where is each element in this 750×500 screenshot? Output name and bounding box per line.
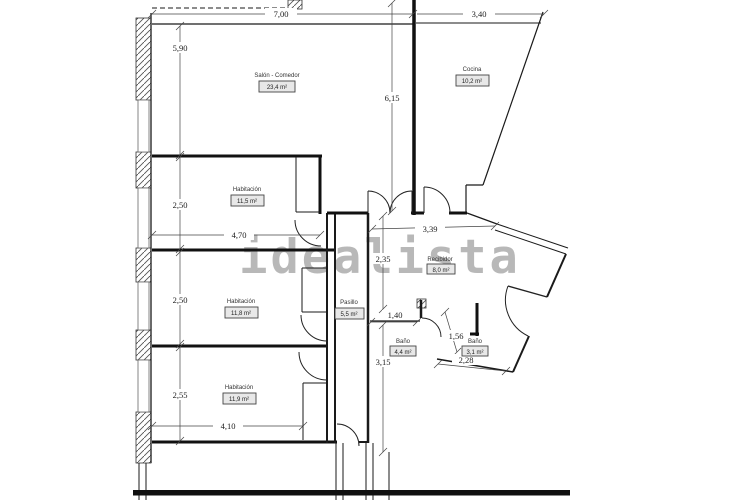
window	[138, 282, 149, 330]
svg-text:11,5 m²: 11,5 m²	[237, 199, 257, 205]
svg-text:11,8 m²: 11,8 m²	[231, 311, 251, 317]
svg-text:2,35: 2,35	[376, 254, 391, 264]
window	[138, 100, 149, 152]
svg-text:Baño: Baño	[468, 339, 483, 345]
svg-text:8,0 m²: 8,0 m²	[432, 268, 449, 274]
svg-text:Habitación: Habitación	[225, 385, 253, 391]
svg-text:Salón - Comedor: Salón - Comedor	[254, 73, 299, 79]
svg-text:1,40: 1,40	[388, 310, 403, 320]
svg-text:Recibidor: Recibidor	[427, 257, 452, 263]
svg-text:4,4 m²: 4,4 m²	[394, 350, 411, 356]
floor-plan-page: idealista	[0, 0, 750, 500]
svg-text:5,5 m²: 5,5 m²	[340, 312, 357, 318]
svg-text:2,28: 2,28	[459, 355, 474, 365]
svg-text:Baño: Baño	[396, 339, 411, 345]
wall-block	[288, 0, 302, 9]
room-label-habitacion3: Habitación 11,9 m²	[223, 385, 256, 404]
room-label-salon: Salón - Comedor 23,4 m²	[254, 73, 299, 92]
svg-text:2,55: 2,55	[173, 390, 188, 400]
window	[138, 188, 149, 248]
left-exterior-wall	[136, 18, 151, 500]
svg-text:4,70: 4,70	[232, 230, 247, 240]
svg-text:6,15: 6,15	[385, 93, 400, 103]
floor-plan: idealista	[0, 0, 750, 500]
svg-text:Pasillo: Pasillo	[340, 300, 358, 306]
svg-text:4,10: 4,10	[221, 421, 236, 431]
svg-text:Habitación: Habitación	[227, 299, 255, 305]
svg-text:5,90: 5,90	[173, 43, 188, 53]
room-label-habitacion2: Habitación 11,8 m²	[225, 299, 258, 318]
svg-text:10,2 m²: 10,2 m²	[462, 79, 482, 85]
bottom-wall-bar	[133, 490, 570, 496]
svg-text:Habitación: Habitación	[233, 187, 261, 193]
room-label-habitacion1: Habitación 11,5 m²	[231, 187, 264, 206]
svg-text:11,9 m²: 11,9 m²	[229, 397, 249, 403]
svg-text:3,15: 3,15	[376, 357, 391, 367]
svg-text:Cocina: Cocina	[463, 67, 482, 73]
room-label-recibidor: Recibidor 8,0 m²	[427, 257, 455, 274]
svg-text:1,56: 1,56	[449, 331, 464, 341]
svg-text:3,1 m²: 3,1 m²	[466, 350, 483, 356]
window	[138, 360, 149, 412]
svg-text:3,40: 3,40	[472, 9, 487, 19]
svg-text:2,50: 2,50	[173, 200, 188, 210]
svg-text:23,4 m²: 23,4 m²	[267, 85, 287, 91]
svg-text:7,00: 7,00	[274, 9, 289, 19]
svg-text:3,39: 3,39	[423, 224, 438, 234]
svg-text:2,50: 2,50	[173, 295, 188, 305]
